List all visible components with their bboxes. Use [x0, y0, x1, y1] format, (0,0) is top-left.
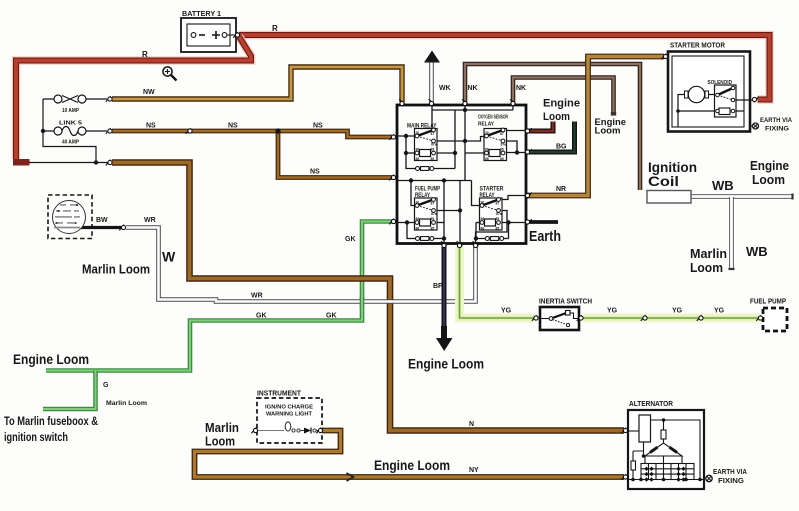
svg-text:NS: NS: [310, 169, 320, 176]
svg-text:R: R: [272, 24, 278, 33]
svg-text:RELAY: RELAY: [478, 122, 494, 128]
svg-text:BW: BW: [96, 217, 108, 224]
svg-text:BP: BP: [433, 283, 443, 290]
svg-text:INSTRUMENT: INSTRUMENT: [257, 391, 302, 398]
svg-text:FUEL PUMP: FUEL PUMP: [750, 299, 786, 306]
svg-text:Marlin Loom: Marlin Loom: [82, 262, 150, 277]
svg-text:WARNING LIGHT: WARNING LIGHT: [266, 412, 313, 418]
svg-text:STARTER: STARTER: [480, 187, 505, 193]
svg-text:WB: WB: [712, 178, 734, 193]
svg-text:Loom: Loom: [543, 111, 570, 123]
svg-text:GK: GK: [345, 236, 356, 243]
svg-text:OXYGEN SENSOR: OXYGEN SENSOR: [478, 115, 508, 121]
svg-text:40 AMP: 40 AMP: [62, 140, 79, 146]
svg-text:MAIN RELAY: MAIN RELAY: [407, 124, 437, 130]
svg-text:NK: NK: [516, 85, 526, 92]
svg-text:10 AMP: 10 AMP: [62, 108, 79, 114]
svg-text:LINK 5: LINK 5: [59, 121, 82, 127]
svg-text:STARTER MOTOR: STARTER MOTOR: [670, 41, 725, 50]
svg-text:YG: YG: [501, 308, 512, 315]
svg-text:YG: YG: [714, 308, 725, 315]
svg-text:To Marlin fuseboox &: To Marlin fuseboox &: [4, 414, 98, 428]
svg-text:Engine Loom: Engine Loom: [408, 356, 484, 372]
svg-text:RELAY: RELAY: [480, 193, 495, 199]
svg-text:NW: NW: [143, 89, 155, 96]
svg-text:EARTH VIA: EARTH VIA: [760, 117, 792, 124]
svg-text:Engine: Engine: [543, 98, 580, 110]
svg-text:Engine Loom: Engine Loom: [13, 351, 89, 367]
svg-text:FIXING: FIXING: [765, 126, 789, 133]
svg-text:R: R: [142, 50, 148, 59]
svg-text:NS: NS: [228, 123, 238, 130]
svg-text:Coil: Coil: [648, 173, 679, 189]
svg-text:IGN/NO CHARGE: IGN/NO CHARGE: [265, 405, 314, 411]
svg-text:FUEL PUMP: FUEL PUMP: [415, 187, 440, 193]
svg-text:BATTERY 1: BATTERY 1: [182, 9, 221, 18]
svg-text:Loom: Loom: [752, 172, 785, 187]
svg-text:ignition switch: ignition switch: [4, 430, 68, 444]
svg-text:N: N: [469, 421, 474, 428]
svg-text:Loom: Loom: [690, 260, 723, 275]
svg-text:NS: NS: [313, 123, 323, 130]
svg-text:NS: NS: [146, 123, 156, 130]
svg-text:WB: WB: [746, 244, 768, 259]
svg-text:Loom: Loom: [205, 434, 235, 449]
svg-text:W: W: [162, 249, 176, 265]
svg-text:Earth: Earth: [529, 228, 561, 245]
svg-text:YG: YG: [672, 308, 683, 315]
svg-text:Loom: Loom: [595, 126, 621, 136]
svg-text:BG: BG: [556, 144, 567, 151]
svg-text:WR: WR: [144, 217, 156, 224]
svg-text:GK: GK: [256, 313, 267, 320]
svg-text:Marlin: Marlin: [690, 246, 727, 261]
svg-text:EARTH VIA: EARTH VIA: [713, 469, 747, 476]
svg-text:RELAY: RELAY: [415, 193, 430, 199]
svg-text:WR: WR: [251, 293, 263, 300]
svg-text:NY: NY: [469, 467, 479, 474]
svg-text:INERTIA SWITCH: INERTIA SWITCH: [539, 299, 592, 306]
svg-text:SOLENOID: SOLENOID: [708, 80, 733, 86]
svg-text:G: G: [103, 382, 109, 389]
svg-text:WK: WK: [439, 85, 451, 92]
svg-text:GK: GK: [326, 313, 337, 320]
svg-text:ALTERNATOR: ALTERNATOR: [629, 399, 674, 408]
svg-text:FIXING: FIXING: [718, 478, 745, 485]
svg-text:Marlin Loom: Marlin Loom: [106, 400, 147, 407]
svg-text:Engine: Engine: [750, 158, 789, 173]
svg-text:NK: NK: [468, 85, 478, 92]
svg-text:NR: NR: [556, 186, 566, 193]
svg-text:Engine Loom: Engine Loom: [374, 457, 450, 473]
svg-text:YG: YG: [607, 308, 618, 315]
